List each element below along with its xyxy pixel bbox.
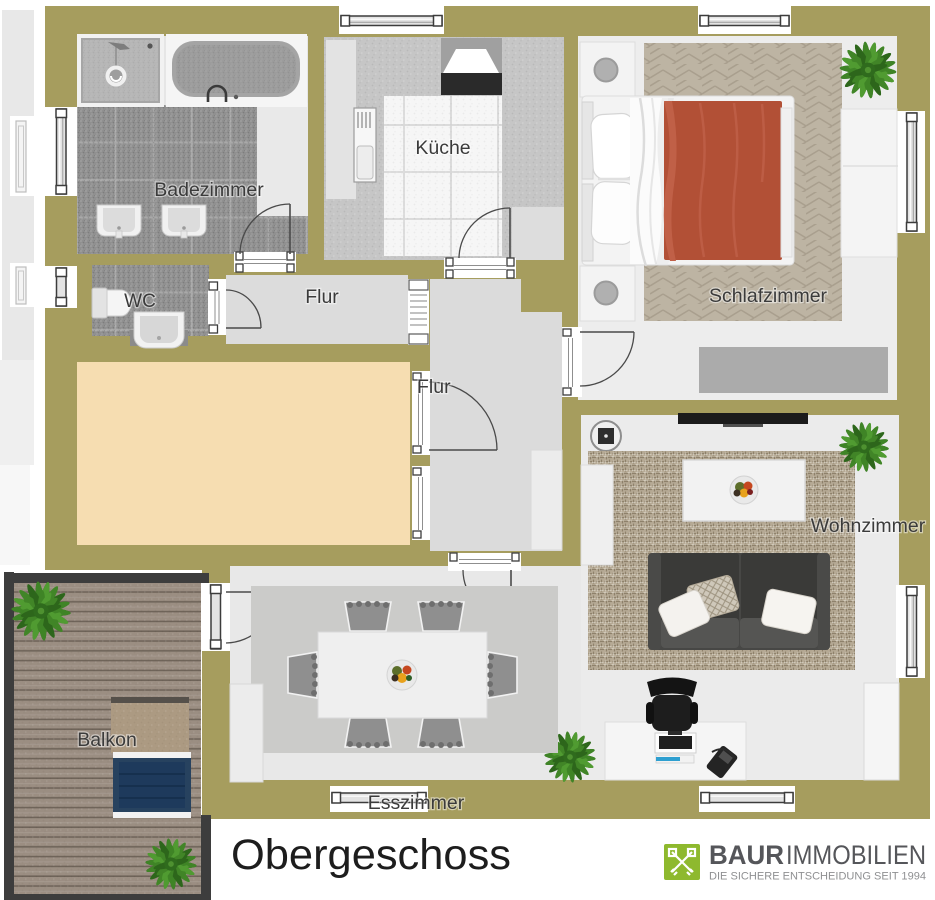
svg-text:Flur: Flur	[305, 286, 339, 308]
svg-text:Flur: Flur	[417, 376, 451, 398]
svg-text:Küche: Küche	[415, 137, 470, 159]
svg-text:DIE SICHERE ENTSCHEIDUNG SEIT: DIE SICHERE ENTSCHEIDUNG SEIT 1994	[709, 871, 926, 883]
svg-text:BAUR: BAUR	[709, 840, 784, 870]
svg-text:Badezimmer: Badezimmer	[154, 179, 264, 201]
svg-text:WC: WC	[124, 291, 156, 312]
svg-text:Obergeschoss: Obergeschoss	[231, 831, 511, 879]
svg-text:Schlafzimmer: Schlafzimmer	[709, 285, 828, 307]
svg-text:Wohnzimmer: Wohnzimmer	[811, 515, 926, 537]
svg-text:Balkon: Balkon	[77, 729, 137, 751]
svg-text:IMMOBILIEN: IMMOBILIEN	[786, 840, 926, 870]
svg-text:Esszimmer: Esszimmer	[368, 792, 465, 814]
